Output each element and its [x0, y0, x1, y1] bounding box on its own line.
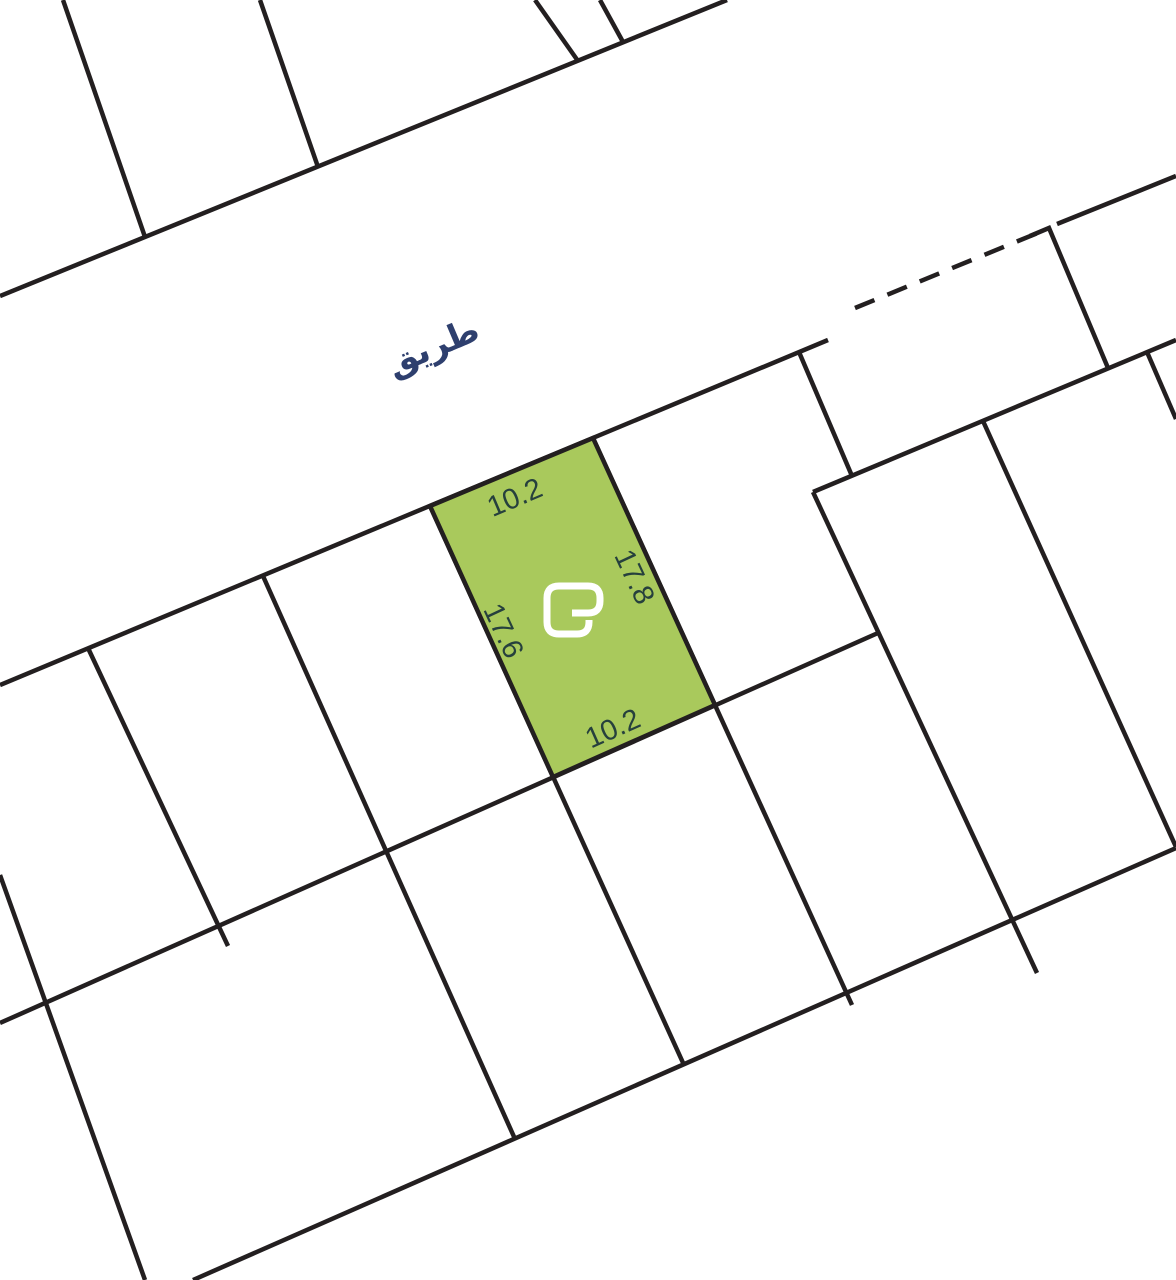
- leftmost-parcel-divider: [0, 875, 145, 1280]
- right-parcel-divider: [1147, 352, 1176, 419]
- road-top-boundary-line: [0, 0, 727, 296]
- dashed-boundary-line: [855, 232, 1040, 308]
- upper-parcel-divider: [260, 0, 318, 167]
- right-parcel-divider: [983, 421, 1176, 847]
- middle-row-divider: [88, 648, 228, 946]
- upper-parcel-divider: [63, 0, 145, 237]
- top-right-parcel-edge: [1057, 176, 1176, 224]
- long-parcel-divider: [263, 576, 515, 1139]
- right-block-left-boundary: [813, 492, 1037, 973]
- bottom-row-boundary: [193, 848, 1176, 1280]
- upper-parcel-divider: [535, 0, 578, 61]
- cadastral-map: طريق 10.2 17.8 17.6 10.2: [0, 0, 1176, 1280]
- highlighted-parcel[interactable]: [430, 438, 715, 777]
- parcel-divider: [799, 352, 852, 476]
- right-parcel-boundaries: [799, 340, 1176, 973]
- upper-parcel-boundaries: [0, 0, 727, 296]
- road-bottom-boundary-line: [0, 340, 828, 685]
- upper-parcel-divider: [600, 0, 623, 42]
- right-block-top-boundary: [813, 340, 1176, 492]
- road-label: طريق: [381, 310, 486, 385]
- corner-parcel-edge: [1030, 228, 1108, 368]
